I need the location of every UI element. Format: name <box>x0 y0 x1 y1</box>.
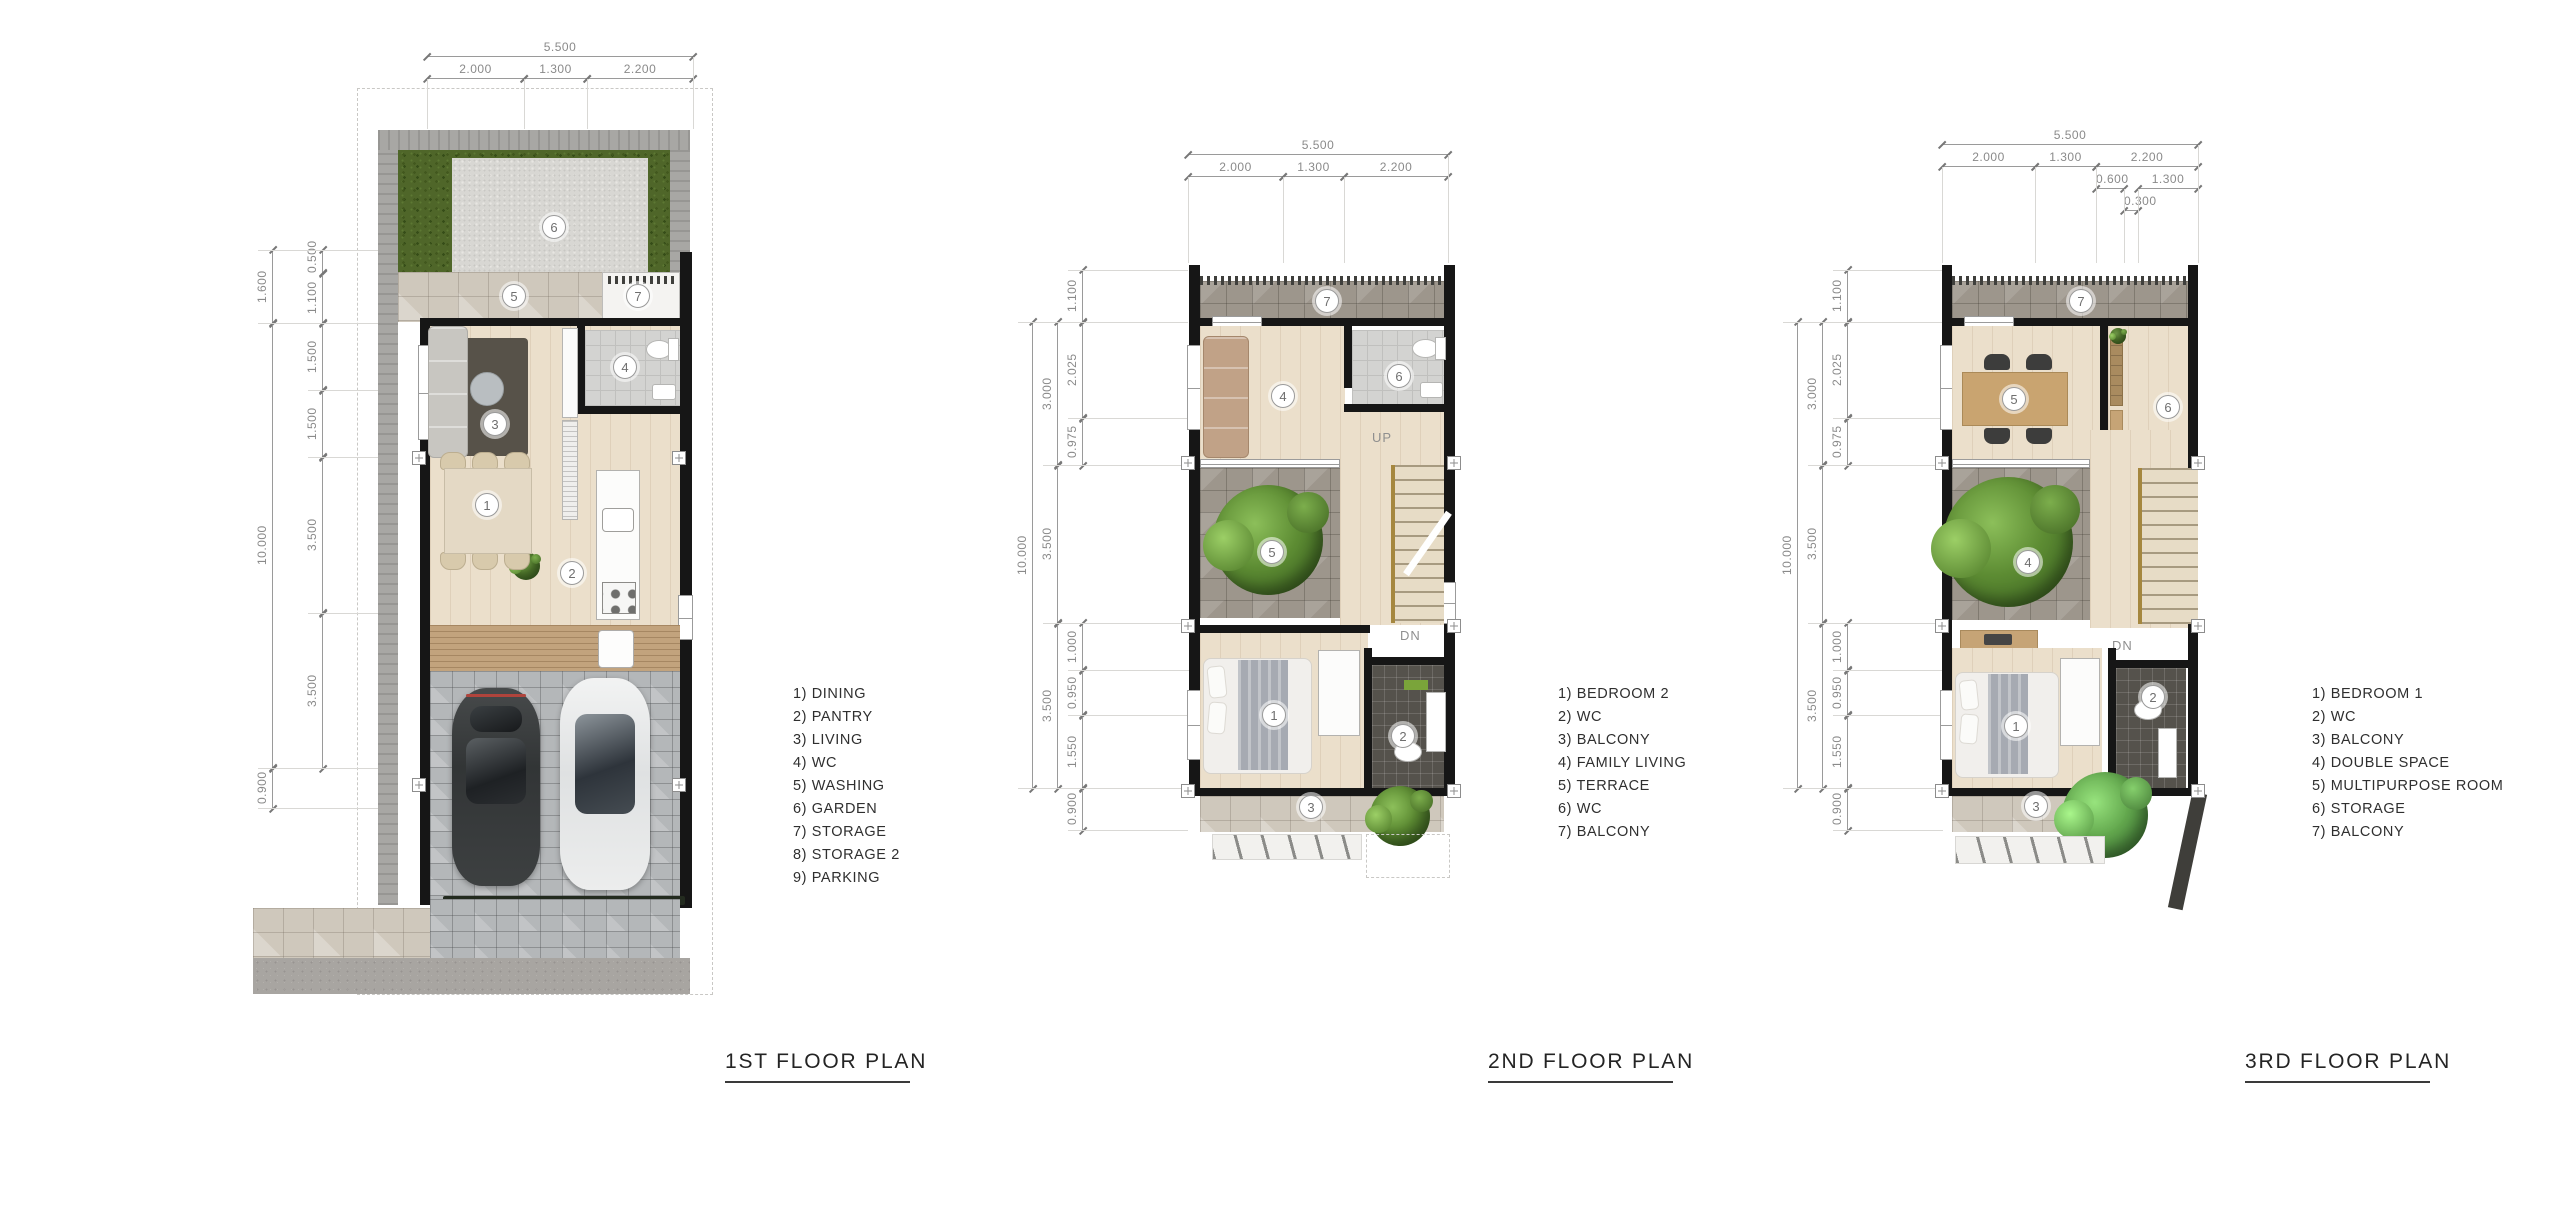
dim-v: 3.500 <box>1041 623 1058 788</box>
dim-label: 3.500 <box>1041 623 1053 788</box>
deck <box>430 625 680 671</box>
joint-marker <box>672 778 686 792</box>
room-badge-bedroom: 1 <box>2004 714 2028 738</box>
legend-item: 5) TERRACE <box>1558 775 1686 798</box>
vanity <box>1426 692 1446 752</box>
dim-label: 2.200 <box>1380 160 1413 174</box>
wall <box>1344 326 1352 388</box>
dim-v: 1.600 <box>256 250 273 323</box>
pillow <box>1206 665 1227 699</box>
dim-label: 2.200 <box>2131 150 2164 164</box>
ext-line <box>2124 189 2125 263</box>
ext-line <box>2138 189 2139 263</box>
room-badge-storage: 7 <box>626 284 650 308</box>
sidewalk <box>253 908 430 958</box>
dim-label: 1.500 <box>306 390 318 457</box>
legend-item: 6) WC <box>1558 798 1686 821</box>
dim-v: 0.900 <box>1066 788 1083 830</box>
dim-h: 1.300 <box>2138 172 2198 189</box>
dim-label: 2.025 <box>1831 322 1843 418</box>
room-badge-garden: 6 <box>542 215 566 239</box>
ext-line <box>2096 167 2097 263</box>
railing-hatch <box>1200 276 1444 285</box>
stove-icon <box>602 582 636 614</box>
car-windshield <box>466 738 526 804</box>
dark-car <box>452 688 540 886</box>
room-badge-dining: 1 <box>475 493 499 517</box>
ext-line <box>1043 465 1188 466</box>
legend-item: 5) MULTIPURPOSE ROOM <box>2312 775 2503 798</box>
ext-line <box>1448 155 1449 263</box>
window-band <box>1200 459 1340 468</box>
room-badge-living: 3 <box>483 412 507 436</box>
dim-h: 0.600 <box>2096 172 2124 189</box>
dim-label: 1.550 <box>1066 715 1078 788</box>
legend-item: 7) BALCONY <box>2312 821 2503 844</box>
legend-item: 3) BALCONY <box>2312 729 2503 752</box>
legend-item: 1) BEDROOM 1 <box>2312 683 2503 706</box>
dim-v: 10.000 <box>1781 322 1798 788</box>
ext-line <box>1188 177 1189 263</box>
ext-line <box>1783 322 1943 323</box>
dim-h: 1.300 <box>1283 160 1344 177</box>
dim-h: 1.300 <box>524 62 587 79</box>
dim-label: 1.300 <box>539 62 572 76</box>
wall <box>1189 265 1200 325</box>
dim-v: 1.550 <box>1831 715 1848 788</box>
room-badge-washing: 5 <box>502 284 526 308</box>
stair-dn-label: DN <box>1400 628 1421 643</box>
dim-h: 0.300 <box>2124 194 2138 211</box>
legend-item: 9) PARKING <box>793 867 900 890</box>
shadow-wedge <box>2168 792 2207 911</box>
cabinet <box>562 328 578 418</box>
dim-label: 3.500 <box>306 457 318 613</box>
ext-line <box>258 768 398 769</box>
kitchen-sink <box>602 508 634 532</box>
dim-label: 10.000 <box>256 323 268 768</box>
dim-label: 5.500 <box>1302 138 1335 152</box>
dim-v: 1.550 <box>1066 715 1083 788</box>
wall <box>2188 265 2198 325</box>
pillow <box>1958 679 1979 711</box>
legend-item: 4) DOUBLE SPACE <box>2312 752 2503 775</box>
room-badge-wc-bottom: 2 <box>1391 724 1415 748</box>
ext-line <box>1783 788 1943 789</box>
joint-marker <box>1181 784 1195 798</box>
dining-chair <box>472 552 498 570</box>
plan-title-third: 3RD FLOOR PLAN <box>2245 1050 2430 1083</box>
wall <box>2108 648 2116 788</box>
legend-second-floor: 1) BEDROOM 2 2) WC 3) BALCONY 4) FAMILY … <box>1558 683 1686 844</box>
dim-v: 2.025 <box>1831 322 1848 418</box>
awning-outline <box>1366 834 1450 878</box>
legend-item: 6) STORAGE <box>2312 798 2503 821</box>
joint-marker <box>412 778 426 792</box>
legend-third-floor: 1) BEDROOM 1 2) WC 3) BALCONY 4) DOUBLE … <box>2312 683 2503 844</box>
ext-line <box>1833 830 1943 831</box>
joint-marker <box>2191 456 2205 470</box>
dim-label: 1.550 <box>1831 715 1843 788</box>
window <box>1187 345 1201 430</box>
ext-line <box>1833 270 1943 271</box>
dim-label: 1.500 <box>306 323 318 390</box>
door-opening <box>678 595 693 640</box>
ext-line <box>1018 322 1188 323</box>
door-opening <box>1442 582 1456 624</box>
ext-line <box>1068 715 1198 716</box>
sofa <box>1203 336 1249 458</box>
ext-line <box>1808 623 1943 624</box>
dim-v: 1.000 <box>1066 623 1083 670</box>
ext-line <box>2035 167 2036 263</box>
chair <box>1984 354 2010 370</box>
dim-v: 0.975 <box>1831 418 1848 465</box>
legend-item: 5) WASHING <box>793 775 900 798</box>
stair-rail <box>2138 468 2142 624</box>
dim-v: 2.025 <box>1066 322 1083 418</box>
road <box>253 958 690 994</box>
dim-label: 1.100 <box>1066 270 1078 322</box>
dim-label: 2.200 <box>624 62 657 76</box>
plant-icon <box>2110 328 2126 344</box>
wall <box>1344 404 1455 412</box>
ext-line <box>1344 177 1345 263</box>
dim-v: 3.500 <box>1806 465 1823 623</box>
joint-marker <box>1935 456 1949 470</box>
dim-label: 0.975 <box>1066 418 1078 465</box>
dim-label: 1.000 <box>1831 623 1843 670</box>
ext-line <box>1068 830 1188 831</box>
dim-v: 0.950 <box>1831 670 1848 715</box>
joint-marker <box>1935 619 1949 633</box>
joint-marker <box>412 451 426 465</box>
white-car <box>560 678 650 890</box>
room-badge-wc: 2 <box>2141 685 2165 709</box>
dim-label: 0.950 <box>1831 670 1843 715</box>
ext-line <box>1942 167 1943 263</box>
washing-area <box>398 272 602 322</box>
chair <box>1984 428 2010 444</box>
dim-label: 2.000 <box>1219 160 1252 174</box>
ext-line <box>1068 670 1198 671</box>
room-badge-multipurpose: 5 <box>2002 387 2026 411</box>
dim-h: 2.200 <box>2096 150 2198 167</box>
toilet-tank <box>668 338 679 361</box>
legend-item: 2) WC <box>1558 706 1686 729</box>
dim-v: 10.000 <box>256 323 273 768</box>
coffee-table <box>470 372 504 406</box>
window-band <box>1952 459 2090 468</box>
room-badge-pantry: 2 <box>560 561 584 585</box>
room-badge-wc-top: 6 <box>1387 364 1411 388</box>
dim-label: 5.500 <box>2054 128 2087 142</box>
floor-plan-sheet: { "canvas": {"width": 2560, "height": 12… <box>0 0 2560 1207</box>
car-taillight <box>466 694 526 697</box>
plan-title-second: 2ND FLOOR PLAN <box>1488 1050 1673 1083</box>
ext-line <box>427 79 428 129</box>
dim-v: 1.100 <box>1066 270 1083 322</box>
desk-monitor <box>1984 634 2012 645</box>
wall <box>420 318 690 326</box>
legend-item: 2) WC <box>2312 706 2503 729</box>
sink-icon <box>1420 382 1443 398</box>
wall <box>1364 657 1452 665</box>
room-badge-balcony-top: 7 <box>1315 289 1339 313</box>
stairs <box>2142 468 2198 624</box>
wall <box>1189 625 1370 633</box>
legend-item: 3) BALCONY <box>1558 729 1686 752</box>
dim-h: 1.300 <box>2035 150 2096 167</box>
dim-label: 0.900 <box>1831 788 1843 830</box>
dim-label: 0.950 <box>1066 670 1078 715</box>
ext-line <box>258 808 398 809</box>
dim-label: 1.300 <box>2152 172 2185 186</box>
pillow <box>1959 713 1980 744</box>
dim-h: 5.500 <box>427 40 693 57</box>
dim-v: 3.000 <box>1041 322 1058 465</box>
room-badge-bedroom: 1 <box>1262 703 1286 727</box>
dim-label: 2.025 <box>1066 322 1078 418</box>
chair <box>2026 354 2052 370</box>
dim-label: 3.500 <box>306 613 318 768</box>
joint-marker <box>2191 619 2205 633</box>
dim-label: 2.000 <box>1972 150 2005 164</box>
legend-item: 4) FAMILY LIVING <box>1558 752 1686 775</box>
dim-v: 3.500 <box>306 613 323 768</box>
dim-label: 1.100 <box>1831 270 1843 322</box>
ext-line <box>693 57 694 129</box>
dim-h: 2.000 <box>1188 160 1283 177</box>
room-badge-balcony-bottom: 3 <box>2024 794 2048 818</box>
shelf <box>2110 334 2123 406</box>
vent-hatch <box>608 276 674 284</box>
wall <box>378 130 398 905</box>
dim-h: 5.500 <box>1188 138 1448 155</box>
wall <box>2100 326 2108 430</box>
dim-v: 1.100 <box>1831 270 1848 322</box>
legend-item: 8) STORAGE 2 <box>793 844 900 867</box>
legend-item: 2) PANTRY <box>793 706 900 729</box>
dim-v: 3.500 <box>1806 623 1823 788</box>
dining-chair <box>440 552 466 570</box>
ext-line <box>1068 270 1188 271</box>
ext-line <box>1068 418 1198 419</box>
driveway <box>430 899 680 958</box>
dim-label: 1.000 <box>1066 623 1078 670</box>
dining-chair <box>504 552 530 570</box>
ext-line <box>2198 145 2199 263</box>
car-sunroof <box>470 706 522 732</box>
railing-hatch <box>1952 276 2188 285</box>
room-badge-wc: 4 <box>613 355 637 379</box>
plan-title-first: 1ST FLOOR PLAN <box>725 1050 910 1083</box>
chair <box>2026 428 2052 444</box>
wall <box>680 252 692 908</box>
dim-label: 1.100 <box>306 273 318 323</box>
dim-label: 0.900 <box>256 768 268 808</box>
dim-h: 5.500 <box>1942 128 2198 145</box>
legend-item: 1) BEDROOM 2 <box>1558 683 1686 706</box>
dim-label: 1.600 <box>256 250 268 323</box>
joint-marker <box>1447 784 1461 798</box>
dim-v: 3.500 <box>306 457 323 613</box>
joint-marker <box>1447 619 1461 633</box>
dim-label: 10.000 <box>1781 322 1793 788</box>
dim-h: 2.200 <box>1344 160 1448 177</box>
window <box>1187 690 1201 760</box>
dim-v: 1.500 <box>306 323 323 390</box>
stairs <box>1395 465 1444 623</box>
dim-label: 0.600 <box>2096 172 2129 186</box>
legend-item: 1) DINING <box>793 683 900 706</box>
room-badge-family-living: 4 <box>1271 384 1295 408</box>
legend-item: 4) WC <box>793 752 900 775</box>
dim-label: 3.500 <box>1806 465 1818 623</box>
room-badge-balcony-top: 7 <box>2069 289 2093 313</box>
joint-marker <box>672 451 686 465</box>
dim-label: 5.500 <box>544 40 577 54</box>
stair-up-label: UP <box>1372 430 1392 445</box>
dim-label: 0.900 <box>1066 788 1078 830</box>
wall <box>570 406 692 414</box>
wall <box>2108 660 2188 668</box>
wall <box>378 130 690 150</box>
sink-icon <box>652 384 676 400</box>
room-badge-terrace: 5 <box>1260 540 1284 564</box>
dim-v: 10.000 <box>1016 322 1033 788</box>
joint-marker <box>1181 456 1195 470</box>
dim-h: 2.200 <box>587 62 693 79</box>
room-badge-balcony-bottom: 3 <box>1299 795 1323 819</box>
joint-marker <box>1935 784 1949 798</box>
tree-icon <box>1943 477 2073 607</box>
wardrobe <box>1318 650 1360 736</box>
dim-label: 10.000 <box>1016 322 1028 788</box>
wall <box>577 326 585 410</box>
dim-v: 0.950 <box>1066 670 1083 715</box>
legend-item: 3) LIVING <box>793 729 900 752</box>
ext-line <box>587 79 588 129</box>
louver-shade <box>1955 836 2105 864</box>
wall <box>1444 265 1455 325</box>
dim-label: 0.300 <box>2124 194 2157 208</box>
bath-mat <box>1404 680 1428 690</box>
counter <box>562 420 578 520</box>
legend-item: 7) BALCONY <box>1558 821 1686 844</box>
ext-line <box>524 79 525 129</box>
dim-label: 0.500 <box>306 250 318 273</box>
dim-h: 2.000 <box>1942 150 2035 167</box>
dim-v: 3.500 <box>1041 465 1058 623</box>
joint-marker <box>1181 619 1195 633</box>
joint-marker <box>1447 456 1461 470</box>
dim-v: 1.000 <box>1831 623 1848 670</box>
ext-line <box>1018 788 1188 789</box>
dim-label: 1.300 <box>1297 160 1330 174</box>
joint-marker <box>2191 784 2205 798</box>
ext-line <box>1833 670 1953 671</box>
legend-first-floor: 1) DINING 2) PANTRY 3) LIVING 4) WC 5) W… <box>793 683 900 890</box>
outdoor-sink <box>598 630 634 668</box>
stair-rail <box>1391 465 1395 623</box>
ext-line <box>258 250 398 251</box>
ext-line <box>1043 623 1188 624</box>
pillow <box>1207 701 1228 734</box>
dim-v: 0.900 <box>256 768 273 808</box>
wall <box>1364 648 1372 788</box>
car-glass-roof <box>575 714 635 814</box>
ext-line <box>1283 177 1284 263</box>
dim-label: 1.300 <box>2049 150 2082 164</box>
ext-line <box>1833 715 1953 716</box>
dim-label: 3.000 <box>1806 322 1818 465</box>
dim-v: 0.975 <box>1066 418 1083 465</box>
dim-label: 3.000 <box>1041 322 1053 465</box>
sofa <box>428 326 468 458</box>
wall <box>1942 265 1952 325</box>
wardrobe <box>2060 658 2100 746</box>
dim-label: 3.500 <box>1041 465 1053 623</box>
room-badge-storage: 6 <box>2156 395 2180 419</box>
dim-v: 3.000 <box>1806 322 1823 465</box>
dim-v: 1.100 <box>306 273 323 323</box>
legend-item: 6) GARDEN <box>793 798 900 821</box>
room-badge-double-space: 4 <box>2016 550 2040 574</box>
dim-label: 2.000 <box>459 62 492 76</box>
dim-v: 0.900 <box>1831 788 1848 830</box>
dim-v: 1.500 <box>306 390 323 457</box>
ext-line <box>1833 418 1953 419</box>
toilet-tank <box>1435 337 1446 360</box>
ext-line <box>1808 465 1943 466</box>
dim-label: 0.975 <box>1831 418 1843 465</box>
dim-h: 2.000 <box>427 62 524 79</box>
legend-item: 7) STORAGE <box>793 821 900 844</box>
dim-v: 0.500 <box>306 250 323 273</box>
dim-label: 3.500 <box>1806 623 1818 788</box>
wall <box>1942 640 1952 648</box>
ext-line <box>258 323 398 324</box>
louver-shade <box>1212 834 1362 860</box>
vanity <box>2158 728 2177 778</box>
